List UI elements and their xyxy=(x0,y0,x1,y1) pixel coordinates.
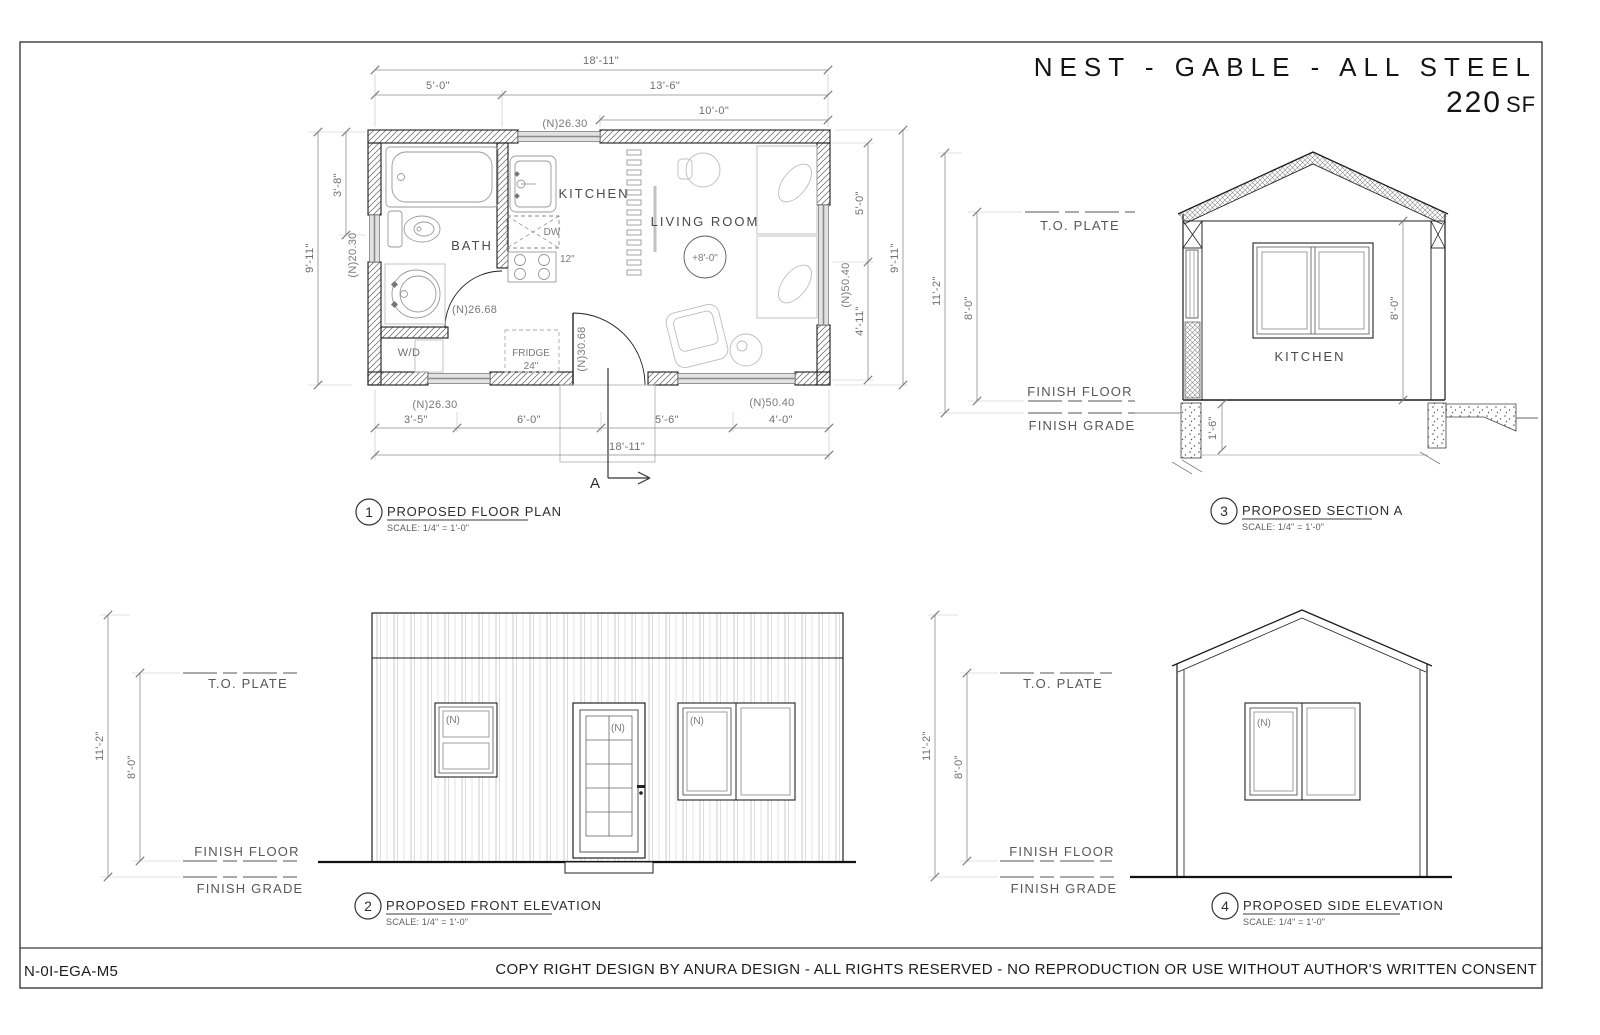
dim-left-overall: 9'-11" xyxy=(304,243,316,273)
front-elevation-drawing: (N) (N) (N) T.O. PLATE xyxy=(94,611,856,927)
dim-right-b: 4'-11" xyxy=(854,306,866,336)
bath-door xyxy=(445,271,502,328)
section-cut-label: A xyxy=(590,475,600,492)
project-area-unit: SF xyxy=(1506,92,1536,117)
project-title: NEST - GABLE - ALL STEEL xyxy=(1034,52,1537,82)
side-number: 4 xyxy=(1221,898,1229,914)
plan-walls xyxy=(368,130,830,385)
section-finish-grade-label: FINISH GRADE xyxy=(1029,418,1136,433)
sheet-code: N-0I-EGA-M5 xyxy=(24,963,118,980)
section-dim-wall: 8'-0" xyxy=(963,296,975,320)
door-handle xyxy=(637,785,645,788)
plan-windows xyxy=(370,132,829,384)
side-dim-wall: 8'-0" xyxy=(953,755,965,779)
section-dim-interior: 8'-0" xyxy=(1389,296,1401,320)
front-scale: SCALE: 1/4" = 1'-0" xyxy=(386,917,468,927)
window-tag-bottom-left: (N)26.30 xyxy=(412,399,457,411)
front-dim-wall: 8'-0" xyxy=(126,755,138,779)
front-finish-floor-label: FINISH FLOOR xyxy=(194,844,299,859)
drawing-sheet: N-0I-EGA-M5 COPY RIGHT DESIGN BY ANURA D… xyxy=(0,0,1600,1035)
dishwasher-label: DW xyxy=(544,227,561,238)
fridge-label: FRIDGE xyxy=(512,348,550,359)
side-finish-floor-label: FINISH FLOOR xyxy=(1009,844,1114,859)
dim-left-a: 3'-8" xyxy=(332,173,344,197)
side-scale: SCALE: 1/4" = 1'-0" xyxy=(1243,917,1325,927)
front-to-plate-label: T.O. PLATE xyxy=(208,676,288,691)
front-door-tag: (N) xyxy=(611,723,625,734)
section-room-label: KITCHEN xyxy=(1274,349,1345,364)
front-title: 2 PROPOSED FRONT ELEVATION SCALE: 1/4" =… xyxy=(355,893,602,927)
front-number: 2 xyxy=(364,898,372,914)
toilet xyxy=(388,211,440,247)
room-label-wd: W/D xyxy=(398,347,421,359)
side-window-tag: (N) xyxy=(1257,718,1271,729)
window-tag-bottom-right: (N)50.40 xyxy=(749,397,794,409)
kitchen-sink xyxy=(510,156,556,212)
section-name: PROPOSED SECTION A xyxy=(1242,503,1403,518)
front-door: (N) xyxy=(565,703,653,873)
section-scale: SCALE: 1/4" = 1'-0" xyxy=(1242,522,1324,532)
dim-bot-a: 3'-5" xyxy=(404,414,428,426)
floor-plan-name: PROPOSED FLOOR PLAN xyxy=(387,504,562,519)
front-name: PROPOSED FRONT ELEVATION xyxy=(386,898,602,913)
side-dim-overall: 11'-2" xyxy=(921,731,933,761)
front-finish-grade-label: FINISH GRADE xyxy=(197,881,304,896)
section-title: 3 PROPOSED SECTION A SCALE: 1/4" = 1'-0" xyxy=(1211,498,1403,532)
front-window-right: (N) xyxy=(678,703,795,800)
dim-top-a: 5'-0" xyxy=(426,80,450,92)
front-window-left: (N) xyxy=(435,703,497,777)
section-foundation xyxy=(1128,400,1538,474)
side-levels: T.O. PLATE FINISH FLOOR FINISH GRADE xyxy=(1000,673,1117,896)
side-title: 4 PROPOSED SIDE ELEVATION SCALE: 1/4" = … xyxy=(1212,893,1444,927)
entry-door-tag: (N)30.68 xyxy=(576,326,588,371)
side-to-plate-label: T.O. PLATE xyxy=(1023,676,1103,691)
front-levels: T.O. PLATE FINISH FLOOR FINISH GRADE xyxy=(183,673,303,896)
fridge: FRIDGE 24" xyxy=(505,330,559,372)
dim-right-overall: 9'-11" xyxy=(889,243,901,273)
side-finish-grade-label: FINISH GRADE xyxy=(1011,881,1118,896)
range: 12" xyxy=(508,252,575,282)
window-tag-top: (N)26.30 xyxy=(542,118,587,130)
dim-overall-width: 18'-11" xyxy=(583,55,619,67)
window-tag-left: (N)20.30 xyxy=(347,232,359,277)
front-window-left-tag: (N) xyxy=(446,715,460,726)
front-dimensions: 11'-2" 8'-0" xyxy=(94,611,180,881)
section-drawing: KITCHEN T.O. PLATE FINISH FLOOR FINISH G… xyxy=(931,149,1538,532)
title-block: NEST - GABLE - ALL STEEL 220 SF xyxy=(1034,52,1537,119)
project-area: 220 xyxy=(1446,86,1502,119)
dim-bot-b: 6'-0" xyxy=(517,414,541,426)
section-dim-overall: 11'-2" xyxy=(931,276,943,306)
room-label-kitchen: KITCHEN xyxy=(558,186,629,201)
ceiling-height-label: +8'-0" xyxy=(692,253,718,264)
section-to-plate-label: T.O. PLATE xyxy=(1040,218,1120,233)
fridge-size-label: 24" xyxy=(524,361,539,372)
living-furniture xyxy=(664,146,818,370)
section-levels: T.O. PLATE FINISH FLOOR FINISH GRADE xyxy=(1025,212,1135,433)
section-finish-floor-label: FINISH FLOOR xyxy=(1027,384,1132,399)
floor-plan-title: 1 PROPOSED FLOOR PLAN SCALE: 1/4" = 1'-0… xyxy=(356,499,562,533)
side-dimensions: 11'-2" 8'-0" xyxy=(921,611,998,881)
front-dim-overall: 11'-2" xyxy=(94,731,106,761)
floor-plan-number: 1 xyxy=(365,504,373,520)
roof-insulation xyxy=(1178,152,1448,224)
room-label-living: LIVING ROOM xyxy=(651,214,760,229)
section-dim-foundation: 1'-6" xyxy=(1207,416,1219,440)
floor-plan-drawing: DW 12" FRIDGE 24" xyxy=(304,55,908,533)
dim-right-a: 5'-0" xyxy=(854,191,866,215)
sheet-canvas: N-0I-EGA-M5 COPY RIGHT DESIGN BY ANURA D… xyxy=(0,0,1600,1035)
dim-bot-d: 4'-0" xyxy=(769,414,793,426)
loft-ladder xyxy=(627,150,655,275)
bath-sink xyxy=(385,264,445,324)
floor-plan-scale: SCALE: 1/4" = 1'-0" xyxy=(387,523,469,533)
room-label-bath: BATH xyxy=(451,238,493,253)
section-number: 3 xyxy=(1220,503,1228,519)
section-cut-marker: A xyxy=(560,368,655,492)
dishwasher: DW xyxy=(507,216,561,248)
window-tag-right: (N)50.40 xyxy=(840,262,852,307)
dim-bot-c: 5'-6" xyxy=(655,414,679,426)
dim-bot-overall: 18'-11" xyxy=(609,441,645,453)
side-name: PROPOSED SIDE ELEVATION xyxy=(1243,898,1444,913)
bath-door-tag: (N)26.68 xyxy=(452,304,497,316)
copyright-text: COPY RIGHT DESIGN BY ANURA DESIGN - ALL … xyxy=(495,961,1537,978)
bathtub xyxy=(386,147,498,207)
front-window-right-tag: (N) xyxy=(690,716,704,727)
side-window: (N) xyxy=(1245,703,1360,800)
door-step xyxy=(565,862,653,873)
range-size-label: 12" xyxy=(560,254,575,265)
dim-top-b: 13'-6" xyxy=(650,80,680,92)
dim-top-c: 10'-0" xyxy=(699,105,729,117)
side-elevation-drawing: (N) T.O. PLATE FINISH FLOOR FINISH GRADE… xyxy=(921,610,1452,927)
section-window xyxy=(1253,243,1373,338)
